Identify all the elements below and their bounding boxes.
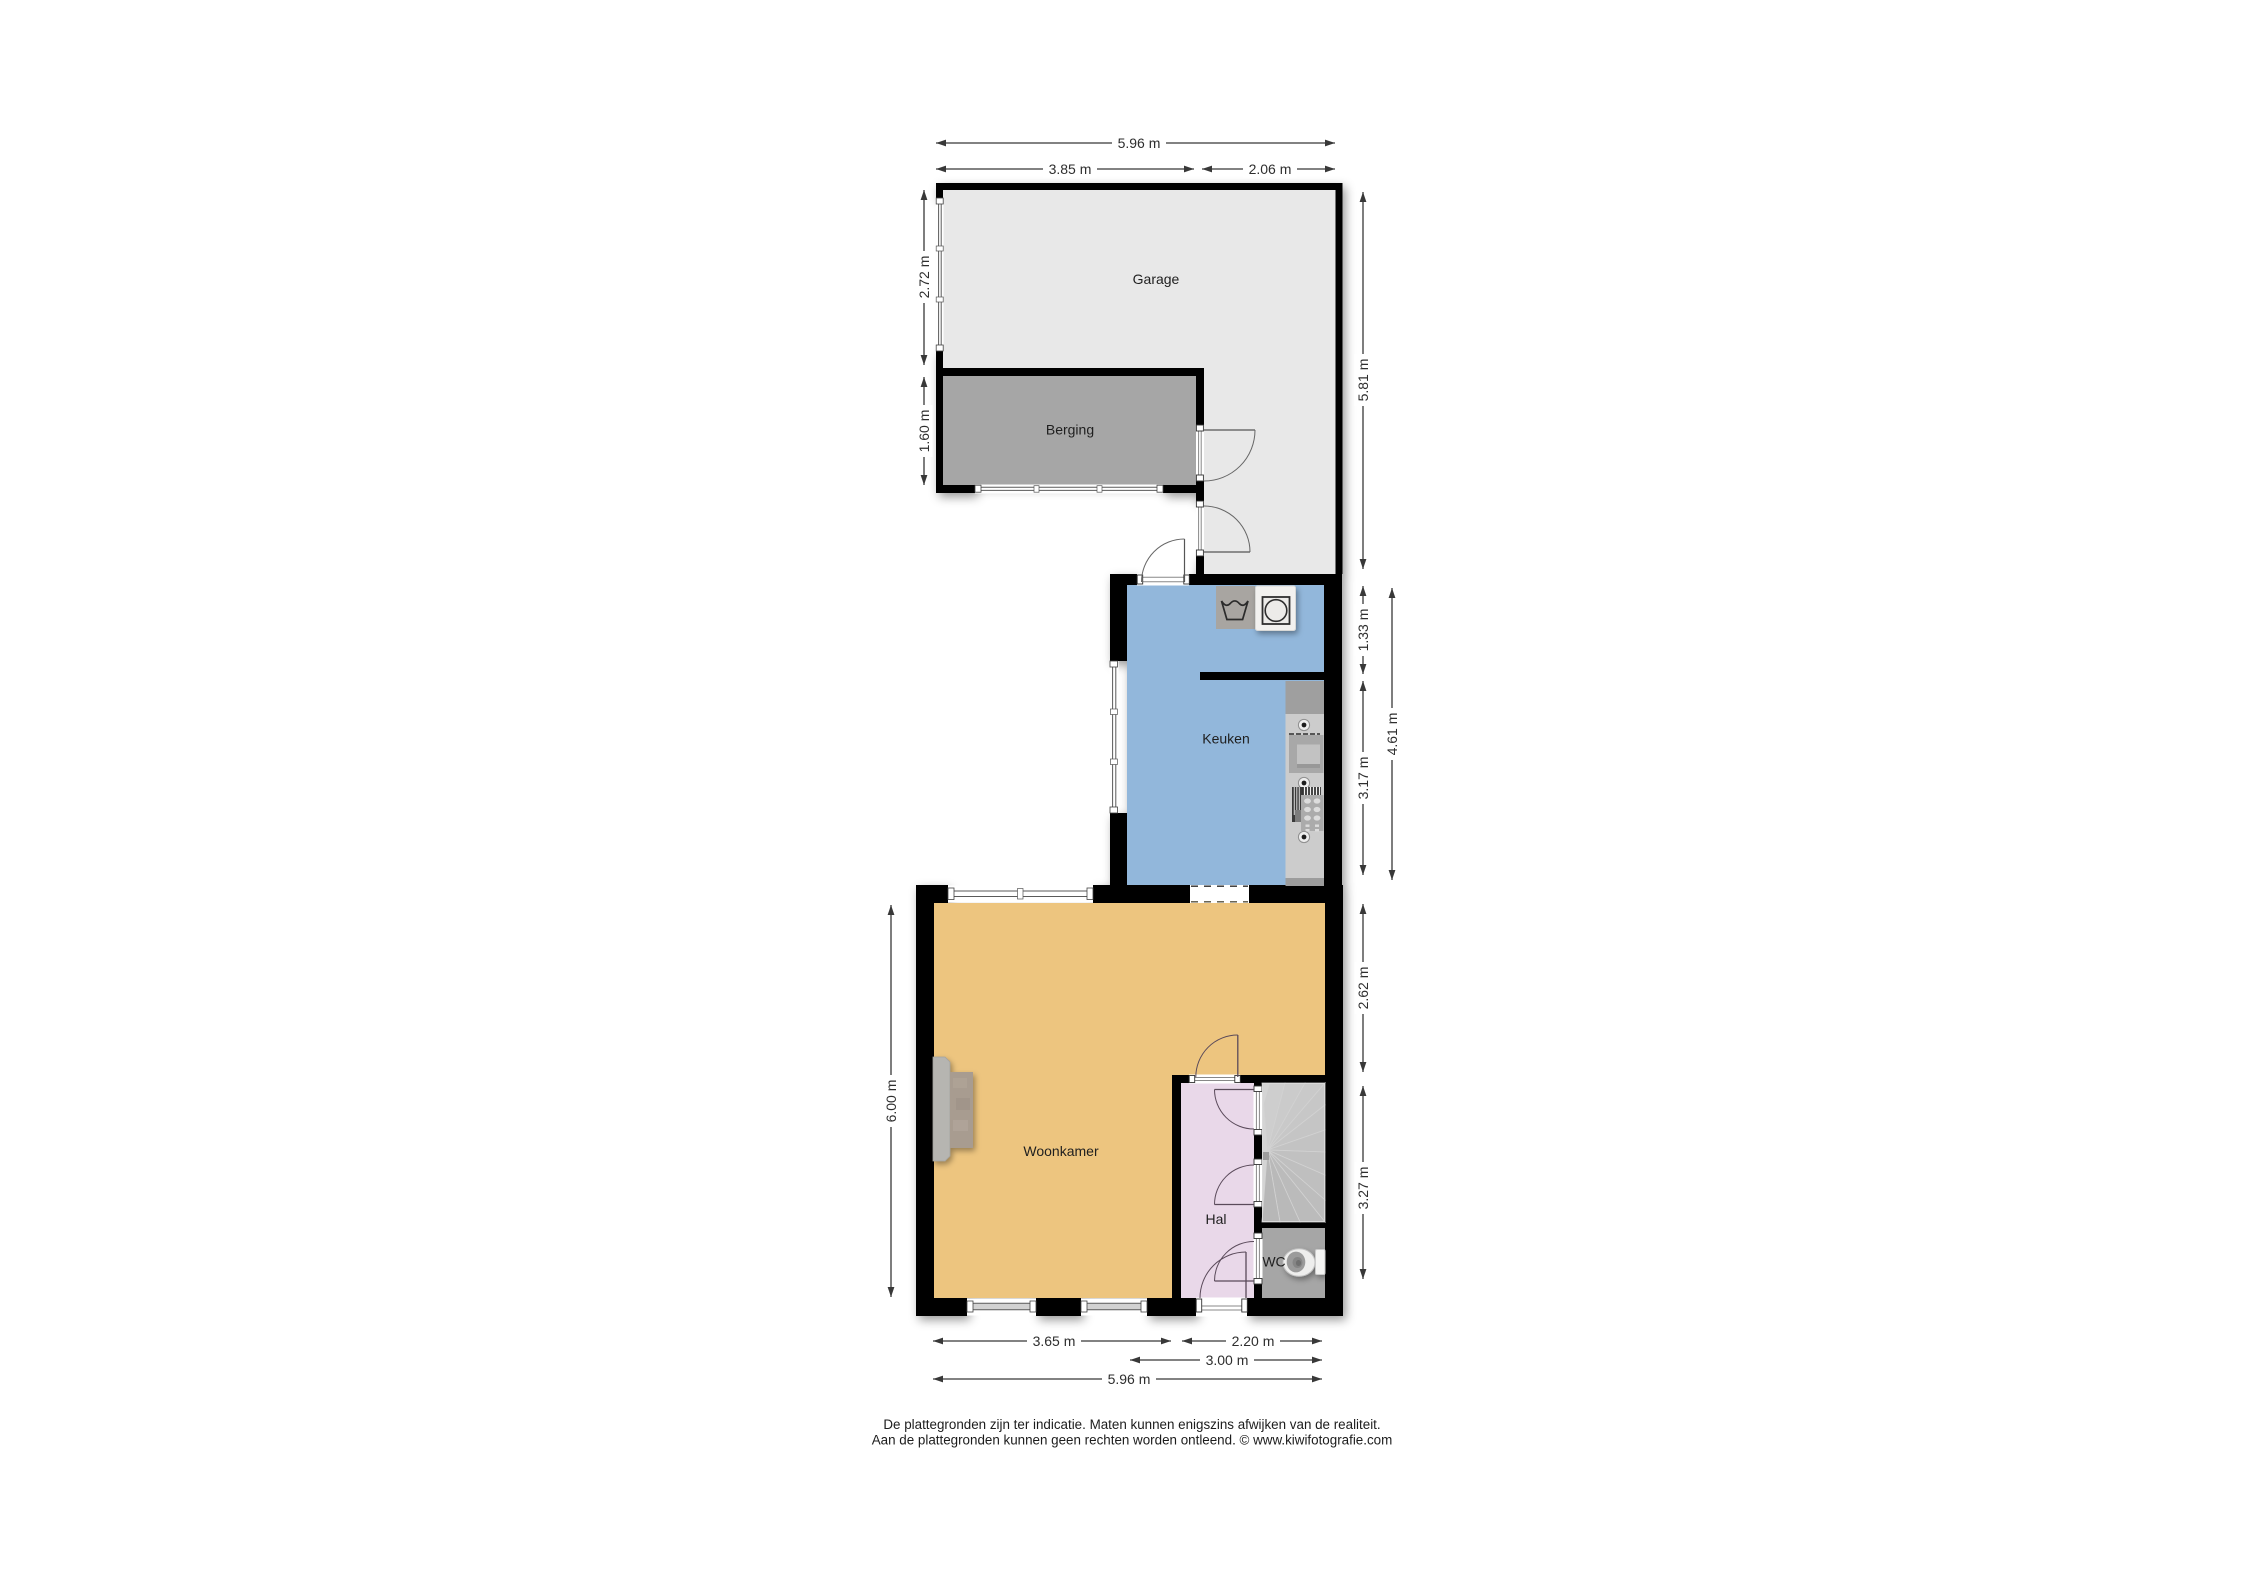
svg-text:Woonkamer: Woonkamer: [1023, 1143, 1099, 1159]
svg-text:1.33 m: 1.33 m: [1355, 609, 1371, 652]
svg-text:2.62 m: 2.62 m: [1355, 967, 1371, 1010]
svg-text:1.60 m: 1.60 m: [916, 410, 932, 453]
svg-text:Keuken: Keuken: [1202, 731, 1249, 747]
svg-text:Hal: Hal: [1205, 1211, 1226, 1227]
svg-text:Aan de plattegronden kunnen ge: Aan de plattegronden kunnen geen rechten…: [872, 1433, 1393, 1448]
svg-text:2.06 m: 2.06 m: [1249, 161, 1292, 177]
svg-text:5.81 m: 5.81 m: [1355, 359, 1371, 402]
svg-text:2.20 m: 2.20 m: [1232, 1333, 1275, 1349]
svg-text:3.17 m: 3.17 m: [1355, 757, 1371, 800]
svg-text:3.85 m: 3.85 m: [1049, 161, 1092, 177]
svg-text:3.00 m: 3.00 m: [1206, 1352, 1249, 1368]
svg-text:5.96 m: 5.96 m: [1118, 135, 1161, 151]
svg-text:De plattegronden zijn ter indi: De plattegronden zijn ter indicatie. Mat…: [883, 1417, 1380, 1432]
svg-text:Garage: Garage: [1133, 271, 1180, 287]
svg-text:3.27 m: 3.27 m: [1355, 1167, 1371, 1210]
svg-text:Berging: Berging: [1046, 422, 1094, 438]
svg-text:2.72 m: 2.72 m: [916, 256, 932, 299]
svg-text:6.00 m: 6.00 m: [883, 1080, 899, 1123]
svg-text:4.61 m: 4.61 m: [1384, 713, 1400, 756]
svg-text:WC: WC: [1262, 1254, 1285, 1270]
svg-text:3.65 m: 3.65 m: [1033, 1333, 1076, 1349]
svg-text:5.96 m: 5.96 m: [1108, 1371, 1151, 1387]
